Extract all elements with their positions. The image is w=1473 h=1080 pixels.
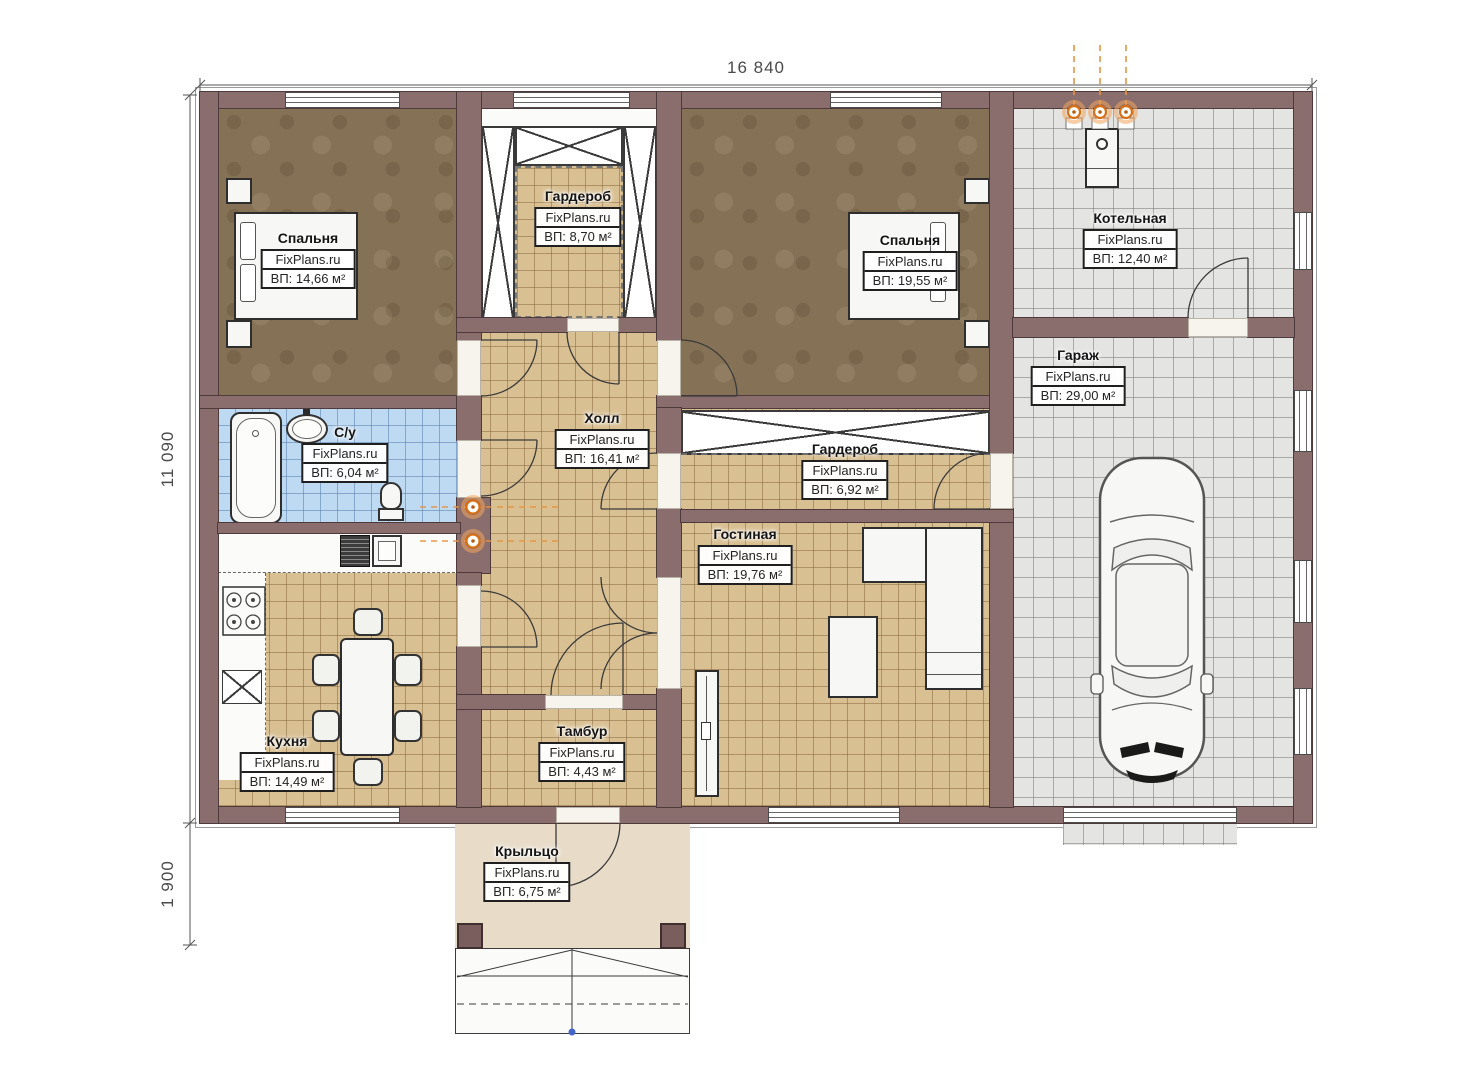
watermark: FixPlans.ru <box>1085 231 1176 250</box>
dish-rack-icon <box>340 535 370 567</box>
stove-icon <box>222 586 266 636</box>
door-opening-kitchen <box>457 585 481 647</box>
toilet-icon <box>380 482 402 510</box>
window-bedroom2 <box>830 92 942 108</box>
room-area: ВП: 8,70 м² <box>536 228 619 245</box>
watermark: FixPlans.ru <box>1033 368 1124 387</box>
room-area: ВП: 19,76 м² <box>700 566 791 583</box>
drain-icon <box>252 430 259 437</box>
wall-garage-divider <box>990 509 1013 807</box>
kitchen-sink-bowl <box>378 541 396 561</box>
window-garage-1 <box>1294 390 1312 452</box>
wall-bathroom-hall <box>457 396 481 440</box>
door-opening-bedroom2 <box>657 340 681 396</box>
floor-garage <box>1013 337 1294 807</box>
room-area: ВП: 29,00 м² <box>1033 387 1124 404</box>
room-info-box: FixPlans.ru ВП: 6,04 м² <box>301 443 388 483</box>
room-name: Тамбур <box>538 723 625 739</box>
watermark: FixPlans.ru <box>803 462 886 481</box>
door-opening-living-double <box>657 577 681 689</box>
kitchen-counter-top <box>218 533 460 573</box>
garage-door <box>1063 807 1237 823</box>
chair-icon <box>353 758 383 786</box>
dimension-width-label: 16 840 <box>727 58 785 78</box>
nightstand-icon <box>226 320 252 348</box>
room-name: Гостиная <box>698 526 793 542</box>
dimension-height-label: 11 090 <box>158 431 178 488</box>
nightstand-icon <box>226 178 252 204</box>
sofa-chaise <box>862 527 928 583</box>
sofa-icon <box>925 527 983 690</box>
door-opening-bathroom <box>457 440 481 498</box>
watermark: FixPlans.ru <box>536 209 619 228</box>
wall-kitchen-vestibule <box>457 647 481 807</box>
room-name: Крыльцо <box>483 843 570 859</box>
wall-bedroom2-bottom <box>657 396 1013 408</box>
porch-post <box>457 923 483 949</box>
door-opening-bedroom1 <box>457 340 481 396</box>
wall-hall-living <box>657 689 681 807</box>
door-opening-boiler <box>1188 318 1248 337</box>
chair-icon <box>353 608 383 636</box>
dining-table <box>340 638 394 756</box>
chair-icon <box>394 710 422 742</box>
window-living <box>768 807 900 823</box>
room-name: Гардероб <box>534 188 621 204</box>
wall-bedroom2-left <box>657 92 681 340</box>
room-info-box: FixPlans.ru ВП: 14,66 м² <box>261 249 356 289</box>
room-area: ВП: 4,43 м² <box>540 763 623 780</box>
porch-post <box>660 923 686 949</box>
room-area: ВП: 6,04 м² <box>303 464 386 481</box>
room-info-box: FixPlans.ru ВП: 6,92 м² <box>801 460 888 500</box>
wall-garage-divider <box>990 92 1013 453</box>
room-name: Гараж <box>1031 347 1126 363</box>
watermark: FixPlans.ru <box>700 547 791 566</box>
room-name: С/у <box>301 424 388 440</box>
room-info-box: FixPlans.ru ВП: 14,49 м² <box>240 752 335 792</box>
watermark: FixPlans.ru <box>242 754 333 773</box>
wall-wardrobe1-bottom <box>457 318 567 332</box>
wall-hall-vestibule <box>457 695 545 709</box>
wall-hall-living <box>657 509 681 577</box>
chair-icon <box>312 654 340 686</box>
wall-bedroom1-right <box>457 92 481 340</box>
room-label-bathroom: С/у FixPlans.ru ВП: 6,04 м² <box>301 424 388 483</box>
room-name: Холл <box>555 410 650 426</box>
room-info-box: FixPlans.ru ВП: 16,41 м² <box>555 429 650 469</box>
watermark: FixPlans.ru <box>303 445 386 464</box>
nightstand-icon <box>964 320 990 348</box>
wall-vent-pier <box>457 498 490 573</box>
room-label-hall: Холл FixPlans.ru ВП: 16,41 м² <box>555 410 650 469</box>
sofa-seam <box>927 652 981 653</box>
room-area: ВП: 19,55 м² <box>865 272 956 289</box>
window-garage-3 <box>1294 688 1312 755</box>
door-opening-garage-wardrobe2 <box>990 453 1013 509</box>
dimension-porch-label: 1 900 <box>158 860 178 908</box>
watermark: FixPlans.ru <box>485 864 568 883</box>
floor-plan: Спальня FixPlans.ru ВП: 14,66 м² Гардеро… <box>0 0 1473 1080</box>
room-info-box: FixPlans.ru ВП: 4,43 м² <box>538 742 625 782</box>
room-label-garage: Гараж FixPlans.ru ВП: 29,00 м² <box>1031 347 1126 406</box>
room-area: ВП: 14,66 м² <box>263 270 354 287</box>
closet-wardrobe1-top <box>515 126 623 166</box>
cabinet-icon <box>222 670 262 704</box>
room-info-box: FixPlans.ru ВП: 12,40 м² <box>1083 229 1178 269</box>
door-opening-wardrobe1 <box>567 318 619 332</box>
faucet-icon <box>303 408 310 416</box>
wall-wardrobe2-living <box>681 510 1013 522</box>
door-opening-wardrobe2 <box>657 453 681 509</box>
room-label-living: Гостиная FixPlans.ru ВП: 19,76 м² <box>698 526 793 585</box>
wall-hall-living <box>657 408 681 453</box>
porch-steps <box>455 948 690 1034</box>
room-label-bedroom-1: Спальня FixPlans.ru ВП: 14,66 м² <box>261 230 356 289</box>
wall-kitchen-hall <box>457 573 481 585</box>
room-area: ВП: 12,40 м² <box>1085 250 1176 267</box>
room-label-wardrobe-1: Гардероб FixPlans.ru ВП: 8,70 м² <box>534 188 621 247</box>
boiler-line <box>1087 168 1117 169</box>
pillow-icon <box>240 222 256 260</box>
garage-apron <box>1063 823 1237 845</box>
boiler-dial <box>1096 138 1108 150</box>
room-name: Кухня <box>240 733 335 749</box>
coffee-table <box>828 616 878 698</box>
watermark: FixPlans.ru <box>263 251 354 270</box>
window-kitchen <box>285 807 400 823</box>
wall-boiler-garage <box>1013 318 1188 337</box>
window-garage-2 <box>1294 560 1312 623</box>
room-info-box: FixPlans.ru ВП: 8,70 м² <box>534 207 621 247</box>
room-label-bedroom-2: Спальня FixPlans.ru ВП: 19,55 м² <box>863 232 958 291</box>
door-opening-entrance <box>556 807 620 823</box>
room-label-kitchen: Кухня FixPlans.ru ВП: 14,49 м² <box>240 733 335 792</box>
closet-wardrobe1-right <box>623 126 657 320</box>
window-bedroom1 <box>285 92 400 108</box>
room-name: Гардероб <box>801 441 888 457</box>
room-area: ВП: 14,49 м² <box>242 773 333 790</box>
room-area: ВП: 6,75 м² <box>485 883 568 900</box>
wall-boiler-garage <box>1248 318 1294 337</box>
wall-left <box>200 92 218 823</box>
watermark: FixPlans.ru <box>557 431 648 450</box>
room-info-box: FixPlans.ru ВП: 6,75 м² <box>483 862 570 902</box>
room-name: Спальня <box>863 232 958 248</box>
room-area: ВП: 16,41 м² <box>557 450 648 467</box>
room-label-porch: Крыльцо FixPlans.ru ВП: 6,75 м² <box>483 843 570 902</box>
closet-wardrobe1-left <box>481 126 515 320</box>
pillow-icon <box>240 264 256 302</box>
room-info-box: FixPlans.ru ВП: 29,00 м² <box>1031 366 1126 406</box>
room-area: ВП: 6,92 м² <box>803 481 886 498</box>
watermark: FixPlans.ru <box>865 253 956 272</box>
boiler-icon <box>1085 128 1119 188</box>
room-info-box: FixPlans.ru ВП: 19,55 м² <box>863 251 958 291</box>
room-label-vestibule: Тамбур FixPlans.ru ВП: 4,43 м² <box>538 723 625 782</box>
window-wardrobe1 <box>513 92 630 108</box>
room-name: Спальня <box>261 230 356 246</box>
chair-icon <box>394 654 422 686</box>
window-boiler <box>1294 212 1312 270</box>
wall-bedroom1-bottom <box>200 396 481 408</box>
nightstand-icon <box>964 178 990 204</box>
room-info-box: FixPlans.ru ВП: 19,76 м² <box>698 545 793 585</box>
toilet-tank <box>378 508 404 521</box>
tv-icon <box>701 722 711 740</box>
sofa-seam <box>927 674 981 675</box>
room-name: Котельная <box>1083 210 1178 226</box>
watermark: FixPlans.ru <box>540 744 623 763</box>
wall-bathroom-bottom <box>218 523 460 533</box>
room-label-wardrobe-2: Гардероб FixPlans.ru ВП: 6,92 м² <box>801 441 888 500</box>
room-label-boiler: Котельная FixPlans.ru ВП: 12,40 м² <box>1083 210 1178 269</box>
door-opening-vestibule <box>545 695 623 709</box>
